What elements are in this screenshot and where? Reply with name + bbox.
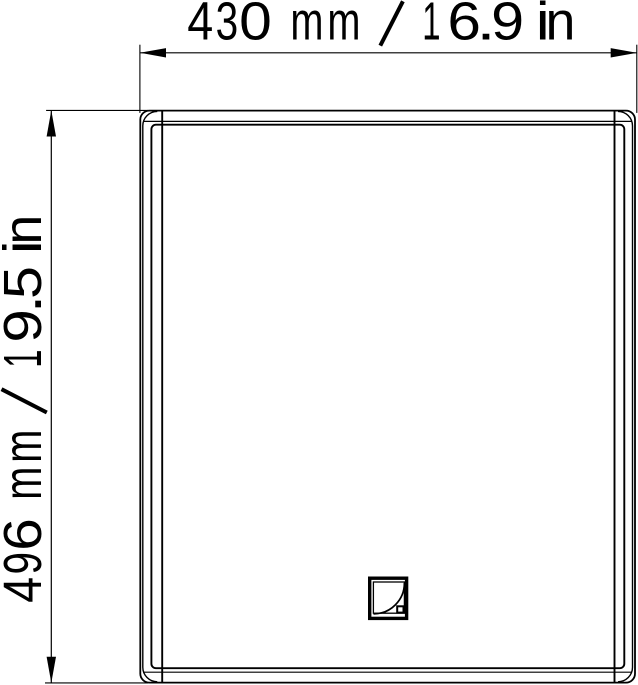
svg-text:4: 4 [187,0,213,52]
svg-text:m: m [0,467,53,500]
svg-text:6: 6 [0,518,53,551]
svg-text:1: 1 [422,0,440,52]
svg-text:m: m [290,0,323,52]
svg-text:4: 4 [0,577,53,603]
svg-text:9: 9 [491,0,524,52]
svg-text:0: 0 [239,0,272,52]
svg-text:n: n [546,0,576,52]
svg-text:3: 3 [216,0,239,52]
svg-text:m: m [327,0,360,52]
svg-text:m: m [0,430,53,463]
svg-text:1: 1 [0,349,53,367]
svg-text:n: n [0,215,53,245]
svg-text:5: 5 [0,266,53,299]
svg-text:9: 9 [0,552,53,575]
